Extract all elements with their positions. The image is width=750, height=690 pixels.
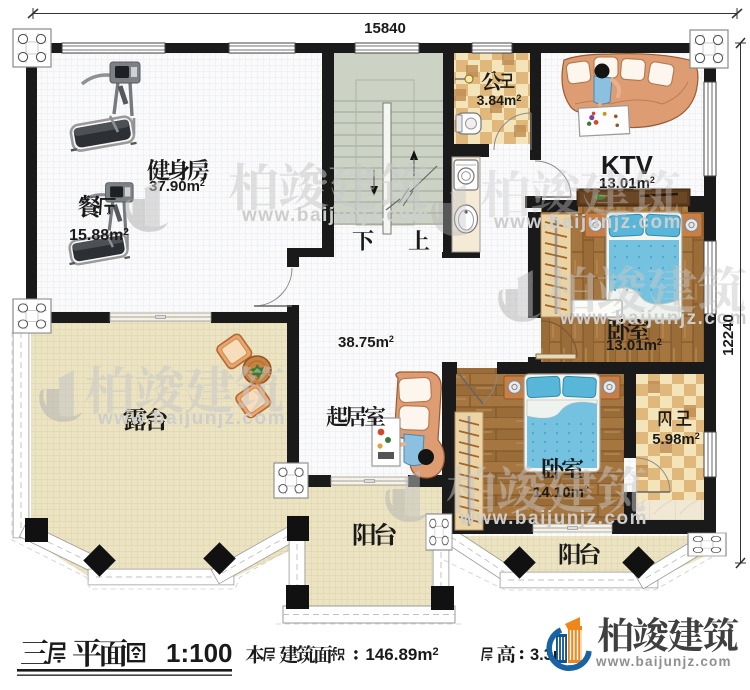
svg-text:www.baijunjz.com: www.baijunjz.com [97, 408, 286, 429]
svg-text:146.89m2: 146.89m2 [365, 645, 438, 664]
svg-text:www.baijunjz.com: www.baijunjz.com [493, 212, 682, 233]
svg-text:1:100: 1:100 [166, 638, 233, 668]
svg-text:15.88m2: 15.88m2 [69, 227, 129, 244]
svg-text:3.84m2: 3.84m2 [477, 92, 522, 108]
svg-text:www.baijunjz.com: www.baijunjz.com [459, 508, 648, 529]
svg-text:38.75m2: 38.75m2 [338, 334, 394, 351]
svg-text:13.01m2: 13.01m2 [606, 337, 662, 354]
svg-text:5.98m2: 5.98m2 [652, 431, 700, 448]
svg-text:12240: 12240 [720, 314, 737, 356]
svg-text:15840: 15840 [364, 20, 406, 37]
svg-text:www.baijunjz.com: www.baijunjz.com [241, 205, 430, 226]
svg-text:www.baijunjz.com: www.baijunjz.com [595, 654, 732, 669]
